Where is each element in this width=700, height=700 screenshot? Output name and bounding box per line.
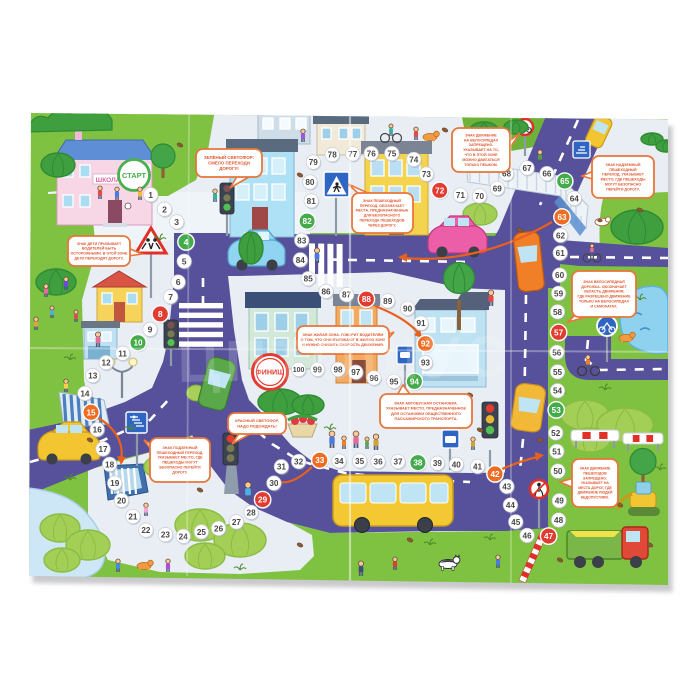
svg-text:ДОРОГУ!: ДОРОГУ!: [219, 166, 239, 171]
svg-text:ПЕРЕХОД. ОБОЗНАЧАЕТ: ПЕРЕХОД. ОБОЗНАЧАЕТ: [360, 204, 405, 208]
svg-text:УКАЗЫВАЕТ НА ТО,: УКАЗЫВАЕТ НА ТО,: [463, 148, 498, 152]
svg-text:6: 6: [176, 277, 181, 287]
svg-text:8: 8: [158, 309, 163, 319]
svg-text:НА ВЕЛОСИПЕДАХ: НА ВЕЛОСИПЕДАХ: [464, 138, 499, 142]
svg-text:И САМОКАТАХ.: И САМОКАТАХ.: [590, 304, 617, 308]
svg-text:МЕСТА ДОРОГ, ГДЕ: МЕСТА ДОРОГ, ГДЕ: [578, 486, 612, 490]
svg-text:22: 22: [141, 526, 151, 535]
svg-text:ЗАПРЕЩЕНО.: ЗАПРЕЩЕНО.: [469, 143, 494, 147]
svg-text:НАДО ПОДОЖДАТЬ!: НАДО ПОДОЖДАТЬ!: [237, 423, 277, 428]
svg-text:54: 54: [553, 387, 563, 396]
svg-text:37: 37: [393, 458, 403, 467]
svg-text:ЧТО В ЭТОЙ ЗОНЕ: ЧТО В ЭТОЙ ЗОНЕ: [464, 153, 498, 157]
svg-text:29: 29: [258, 496, 268, 505]
svg-text:ЗАПРЕЩЕНО.: ЗАПРЕЩЕНО.: [583, 476, 607, 480]
svg-text:48: 48: [554, 516, 564, 525]
svg-text:ШКОЛА: ШКОЛА: [96, 177, 121, 184]
svg-text:3: 3: [174, 217, 179, 227]
svg-text:27: 27: [232, 518, 242, 527]
svg-text:73: 73: [422, 170, 432, 179]
svg-text:ЗНАК ДЕТИ ПРИЗЫВАЕТ: ЗНАК ДЕТИ ПРИЗЫВАЕТ: [77, 242, 122, 246]
svg-text:45: 45: [511, 518, 521, 527]
svg-text:ЗНАК ПОДЗЕМНЫЙ: ЗНАК ПОДЗЕМНЫЙ: [163, 446, 198, 450]
svg-text:ОБЛАСТЬ ДВИЖЕНИЯ,: ОБЛАСТЬ ДВИЖЕНИЯ,: [584, 290, 625, 294]
svg-text:15: 15: [86, 408, 96, 417]
svg-text:17: 17: [98, 445, 108, 454]
svg-text:МОГУТ БЕЗОПАСНО: МОГУТ БЕЗОПАСНО: [605, 183, 642, 187]
svg-text:51: 51: [552, 447, 562, 456]
svg-text:11: 11: [118, 349, 127, 358]
svg-text:ЗНАК ВЕЛОСИПЕДНАЯ: ЗНАК ВЕЛОСИПЕДНАЯ: [583, 280, 625, 284]
svg-text:14: 14: [80, 389, 90, 398]
svg-text:ДЕТИ ПЕРЕХОДЯТ ДОРОГУ.: ДЕТИ ПЕРЕХОДЯТ ДОРОГУ.: [74, 257, 123, 261]
svg-text:76: 76: [367, 150, 377, 159]
svg-text:59: 59: [554, 289, 564, 298]
svg-text:79: 79: [309, 158, 319, 167]
svg-text:88: 88: [362, 295, 372, 304]
svg-text:ВОДИТЕЛЕЙ БЫТЬ: ВОДИТЕЛЕЙ БЫТЬ: [82, 247, 117, 251]
svg-text:40: 40: [452, 460, 462, 469]
svg-text:2: 2: [162, 204, 167, 214]
svg-text:ТОЛЬКО НА ВЕЛОСИПЕДАХ: ТОЛЬКО НА ВЕЛОСИПЕДАХ: [579, 300, 630, 304]
svg-text:32: 32: [294, 458, 304, 467]
svg-text:БЕЗОПАСНО ПЕРЕЙТИ: БЕЗОПАСНО ПЕРЕЙТИ: [159, 466, 201, 470]
svg-text:69: 69: [493, 184, 503, 193]
svg-text:25: 25: [197, 528, 207, 537]
svg-text:9: 9: [148, 324, 153, 334]
svg-text:ПЕШЕХОДНЫЙ: ПЕШЕХОДНЫЙ: [609, 168, 637, 172]
svg-text:21: 21: [128, 512, 138, 521]
svg-text:63: 63: [557, 213, 567, 222]
svg-text:УКАЗЫВАЕТ НА: УКАЗЫВАЕТ НА: [581, 481, 609, 485]
svg-text:ДОРОГУ.: ДОРОГУ.: [172, 470, 188, 474]
svg-text:ТОЛЬКО ПЕШКОМ.: ТОЛЬКО ПЕШКОМ.: [464, 163, 497, 167]
svg-text:ПЕРЕХОДА ПЕШЕХОДОВ: ПЕРЕХОДА ПЕШЕХОДОВ: [360, 219, 405, 223]
svg-text:75: 75: [387, 150, 397, 159]
svg-text:60: 60: [555, 271, 565, 280]
svg-text:86: 86: [321, 287, 331, 296]
svg-text:12: 12: [102, 359, 112, 368]
svg-text:ЗЕЛЁНЫЙ СВЕТОФОР:: ЗЕЛЁНЫЙ СВЕТОФОР:: [204, 155, 255, 160]
svg-text:84: 84: [296, 256, 306, 265]
svg-text:ПЕШЕХОДЫ МОГУТ: ПЕШЕХОДЫ МОГУТ: [162, 461, 198, 465]
svg-text:ПЕРЕЙТИ ДОРОГУ.: ПЕРЕЙТИ ДОРОГУ.: [606, 187, 640, 191]
svg-text:71: 71: [456, 191, 466, 200]
svg-text:34: 34: [334, 457, 344, 466]
svg-text:ЗНАК ПЕШЕХОДНЫЙ: ЗНАК ПЕШЕХОДНЫЙ: [363, 199, 401, 203]
svg-text:1: 1: [148, 190, 153, 200]
svg-text:ПЕШЕХОДОВ: ПЕШЕХОДОВ: [583, 472, 607, 476]
svg-text:57: 57: [554, 328, 564, 337]
svg-text:39: 39: [433, 459, 443, 468]
svg-text:ДВИЖЕНИЕ ЛЮДЕЙ: ДВИЖЕНИЕ ЛЮДЕЙ: [578, 491, 613, 495]
svg-text:23: 23: [161, 531, 171, 540]
svg-text:61: 61: [556, 249, 566, 258]
svg-text:52: 52: [551, 429, 561, 438]
svg-text:66: 66: [542, 170, 552, 179]
svg-text:50: 50: [553, 467, 563, 476]
svg-text:19: 19: [110, 479, 120, 488]
svg-text:35: 35: [355, 457, 365, 466]
svg-text:55: 55: [553, 368, 563, 377]
svg-text:83: 83: [297, 236, 307, 245]
svg-text:82: 82: [303, 217, 313, 226]
svg-text:ГДЕ РАЗРЕШЕНО ДВИЖЕНИЕ: ГДЕ РАЗРЕШЕНО ДВИЖЕНИЕ: [578, 295, 632, 299]
svg-text:ПАССАЖИРСКОГО ТРАНСПОРТА.: ПАССАЖИРСКОГО ТРАНСПОРТА.: [394, 417, 457, 421]
svg-text:90: 90: [403, 304, 413, 313]
svg-text:28: 28: [247, 508, 257, 517]
svg-text:5: 5: [182, 256, 187, 266]
svg-text:53: 53: [552, 406, 562, 415]
svg-text:64: 64: [570, 194, 580, 203]
svg-text:НЕДОПУСТИМО.: НЕДОПУСТИМО.: [581, 496, 610, 500]
svg-text:10: 10: [133, 339, 143, 348]
svg-text:МЕСТА, ПРЕДНАЗНАЧЕННЫЕ: МЕСТА, ПРЕДНАЗНАЧЕННЫЕ: [356, 209, 409, 213]
svg-text:26: 26: [214, 524, 224, 533]
svg-text:ПЕРЕХОД. УКАЗЫВАЕТ: ПЕРЕХОД. УКАЗЫВАЕТ: [602, 173, 645, 177]
svg-text:70: 70: [475, 192, 485, 201]
svg-text:62: 62: [556, 231, 566, 240]
svg-text:49: 49: [555, 497, 565, 506]
svg-text:47: 47: [544, 532, 554, 541]
svg-text:ДЛЯ БЕЗОПАСНОГО: ДЛЯ БЕЗОПАСНОГО: [364, 214, 401, 218]
svg-text:16: 16: [93, 425, 103, 434]
svg-text:42: 42: [490, 470, 500, 479]
svg-text:74: 74: [409, 155, 419, 164]
svg-text:89: 89: [383, 297, 393, 306]
svg-text:56: 56: [552, 348, 562, 357]
svg-text:13: 13: [88, 372, 98, 381]
svg-text:36: 36: [374, 458, 384, 467]
svg-text:ДОРОЖКА. ОБОЗНАЧАЕТ: ДОРОЖКА. ОБОЗНАЧАЕТ: [581, 285, 627, 289]
svg-text:ЗНАК ДВИЖЕНИЕ: ЗНАК ДВИЖЕНИЕ: [465, 133, 497, 137]
svg-text:65: 65: [560, 177, 570, 186]
svg-text:МЕСТО, ГДЕ ПЕШЕХОДЫ: МЕСТО, ГДЕ ПЕШЕХОДЫ: [601, 178, 646, 182]
svg-text:20: 20: [117, 496, 127, 505]
svg-text:ЧЕРЕЗ ДОРОГУ.: ЧЕРЕЗ ДОРОГУ.: [368, 223, 397, 227]
svg-text:78: 78: [328, 151, 338, 160]
svg-text:7: 7: [168, 292, 173, 302]
svg-text:46: 46: [523, 531, 533, 540]
svg-text:41: 41: [473, 462, 483, 471]
svg-text:ОСТОРОЖНЫМИ. В ЭТОЙ ЗОНЕ: ОСТОРОЖНЫМИ. В ЭТОЙ ЗОНЕ: [71, 252, 128, 256]
svg-text:80: 80: [305, 178, 315, 187]
svg-text:МОЖНО ДВИГАТЬСЯ: МОЖНО ДВИГАТЬСЯ: [462, 158, 500, 162]
svg-text:ЗНАК НАДЗЕМНЫЙ: ЗНАК НАДЗЕМНЫЙ: [606, 163, 641, 167]
svg-text:ПЕШЕХОДНЫЙ ПЕРЕХОД.: ПЕШЕХОДНЫЙ ПЕРЕХОД.: [157, 451, 204, 455]
svg-text:38: 38: [413, 459, 423, 468]
svg-text:85: 85: [304, 275, 314, 284]
svg-text:ЗНАК ДВИЖЕНИЕ: ЗНАК ДВИЖЕНИЕ: [580, 467, 611, 471]
svg-text:81: 81: [307, 197, 317, 206]
svg-text:31: 31: [277, 463, 287, 472]
svg-text:58: 58: [553, 308, 563, 317]
svg-text:СТАРТ: СТАРТ: [122, 171, 147, 180]
svg-text:ДЛЯ ОСТАНОВКИ ОБЩЕСТВЕННОГО: ДЛЯ ОСТАНОВКИ ОБЩЕСТВЕННОГО: [391, 412, 461, 416]
svg-text:72: 72: [435, 186, 445, 195]
svg-text:67: 67: [522, 164, 532, 173]
svg-text:ЦПТОШУС: ЦПТОШУС: [177, 324, 512, 395]
svg-text:30: 30: [269, 479, 279, 488]
svg-text:СМЕЛО ПЕРЕХОДИ: СМЕЛО ПЕРЕХОДИ: [208, 161, 250, 166]
svg-text:УКАЗЫВАЕТ МЕСТО, ГДЕ: УКАЗЫВАЕТ МЕСТО, ГДЕ: [157, 456, 203, 460]
svg-text:18: 18: [105, 460, 115, 469]
svg-text:ЗНАК АВТОБУСНАЯ ОСТАНОВКА.: ЗНАК АВТОБУСНАЯ ОСТАНОВКА.: [394, 402, 458, 406]
svg-text:33: 33: [315, 456, 325, 465]
svg-text:УКАЗЫВАЕТ МЕСТО, ПРЕДНАЗНАЧЕНН: УКАЗЫВАЕТ МЕСТО, ПРЕДНАЗНАЧЕННОЕ: [386, 407, 467, 411]
